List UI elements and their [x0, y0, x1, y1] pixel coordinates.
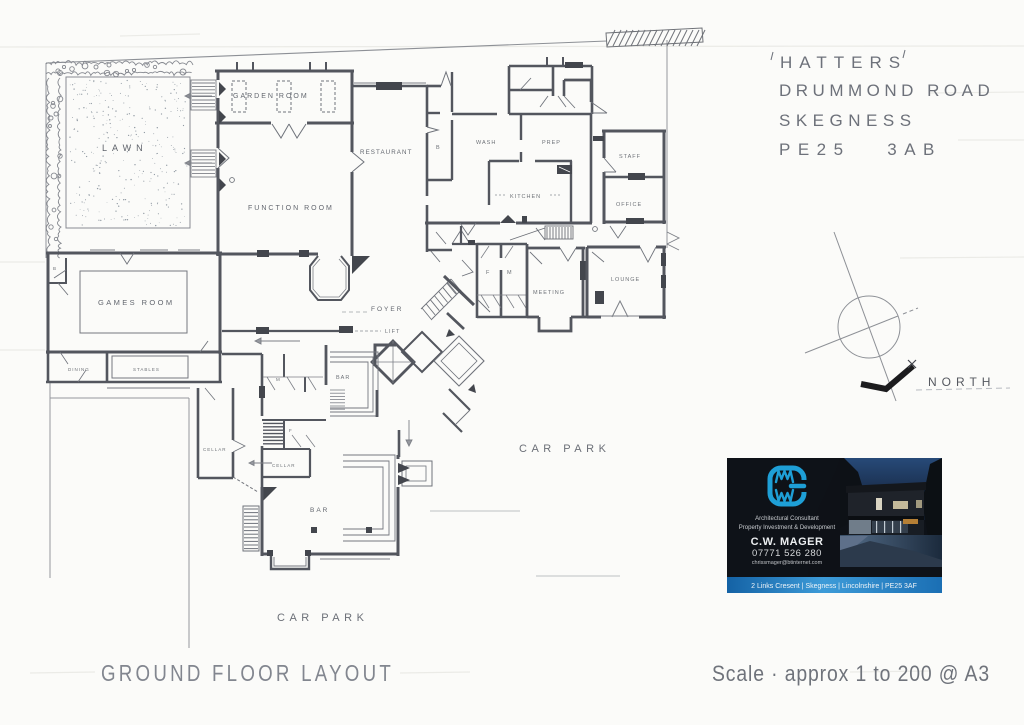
svg-text:2 Links Cresent | Skegness: 2 Links Cresent | Skegness | Lincolnshir… — [751, 583, 917, 590]
svg-text:Property Investment & Developm: Property Investment & Development — [739, 525, 836, 531]
svg-text:Architectural Consultant: Architectural Consultant — [755, 516, 819, 522]
svg-text:MEETING: MEETING — [533, 290, 565, 296]
svg-text:B: B — [436, 145, 441, 151]
svg-text:CELLAR: CELLAR — [203, 447, 227, 452]
svg-text:NORTH: NORTH — [928, 375, 995, 389]
svg-text:CAR PARK: CAR PARK — [519, 443, 610, 455]
svg-text:GROUND FLOOR LAYOUT: GROUND FLOOR LAYOUT — [101, 660, 394, 686]
svg-text:FUNCTION ROOM: FUNCTION ROOM — [248, 205, 334, 212]
svg-text:M: M — [276, 377, 281, 382]
svg-text:OFFICE: OFFICE — [616, 202, 642, 208]
svg-text:Scale · approx 1 to 200 @ A3: Scale · approx 1 to 200 @ A3 — [712, 661, 990, 686]
svg-text:LAWN: LAWN — [102, 143, 148, 153]
svg-text:BAR: BAR — [310, 507, 329, 514]
svg-text:chrissmager@btinternet.com: chrissmager@btinternet.com — [752, 560, 823, 566]
svg-text:STAFF: STAFF — [619, 154, 641, 160]
svg-text:RESTAURANT: RESTAURANT — [360, 149, 412, 156]
svg-text:CELLAR: CELLAR — [272, 463, 296, 468]
svg-text:BAR: BAR — [336, 375, 350, 381]
svg-text:GARDEN ROOM: GARDEN ROOM — [233, 93, 309, 100]
svg-text:FOYER: FOYER — [371, 306, 403, 313]
svg-text:STABLES: STABLES — [133, 367, 160, 372]
svg-text:LIFT: LIFT — [385, 329, 400, 335]
svg-text:PREP: PREP — [542, 140, 561, 146]
svg-text:WASH: WASH — [476, 140, 496, 146]
svg-text:HATTERS: HATTERS — [780, 53, 907, 72]
svg-text:F: F — [289, 428, 293, 433]
svg-text:GAMES ROOM: GAMES ROOM — [98, 298, 175, 307]
svg-text:DINING: DINING — [68, 367, 90, 372]
svg-text:LOUNGE: LOUNGE — [611, 277, 640, 283]
svg-text:C.W. MAGER: C.W. MAGER — [751, 536, 824, 548]
svg-text:F: F — [486, 270, 490, 276]
svg-text:07771 526 280: 07771 526 280 — [752, 548, 822, 559]
svg-text:SKEGNESS: SKEGNESS — [779, 111, 917, 130]
svg-text:B: B — [53, 266, 57, 271]
svg-text:CAR PARK: CAR PARK — [277, 612, 368, 624]
svg-text:M: M — [507, 270, 513, 276]
svg-text:PE25 3AB: PE25 3AB — [779, 140, 942, 159]
svg-text:KITCHEN: KITCHEN — [510, 194, 541, 200]
svg-text:DRUMMOND ROAD: DRUMMOND ROAD — [779, 81, 994, 100]
